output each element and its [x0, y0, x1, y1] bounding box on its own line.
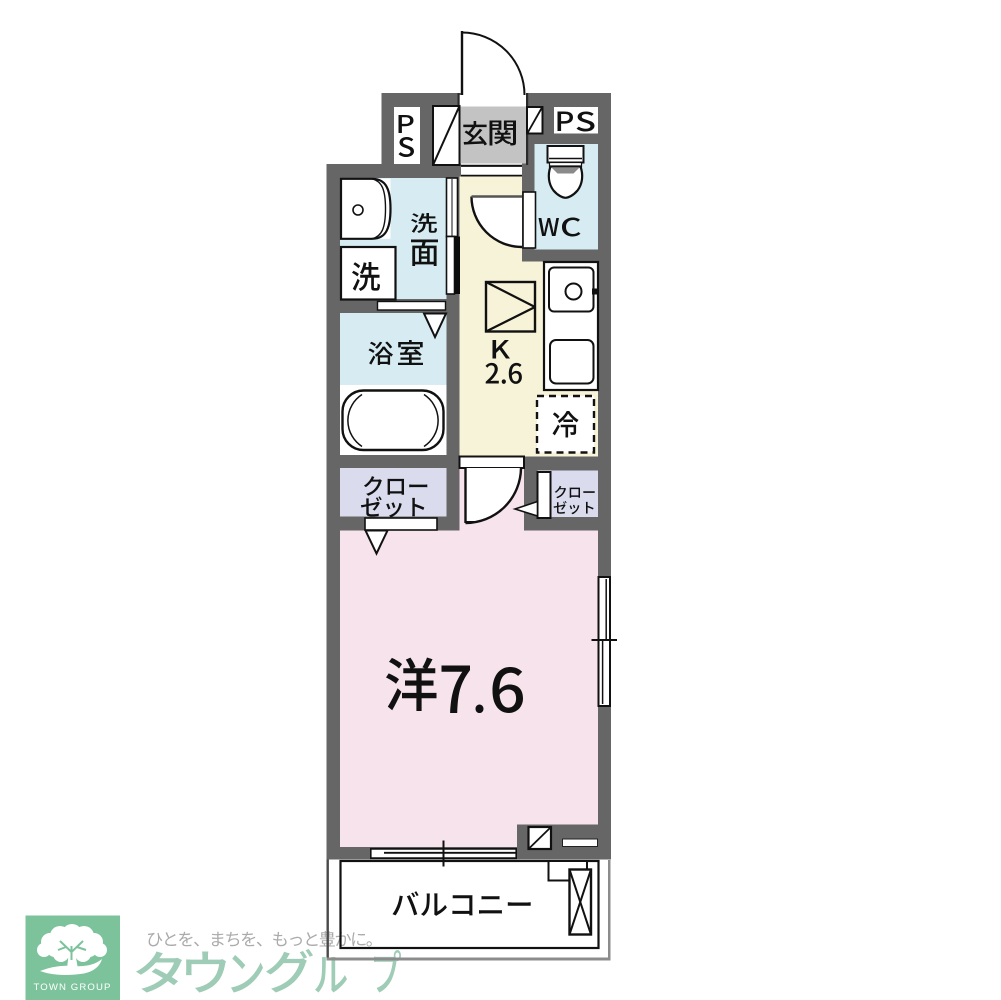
svg-text:TOWN GROUP: TOWN GROUP: [34, 982, 112, 993]
